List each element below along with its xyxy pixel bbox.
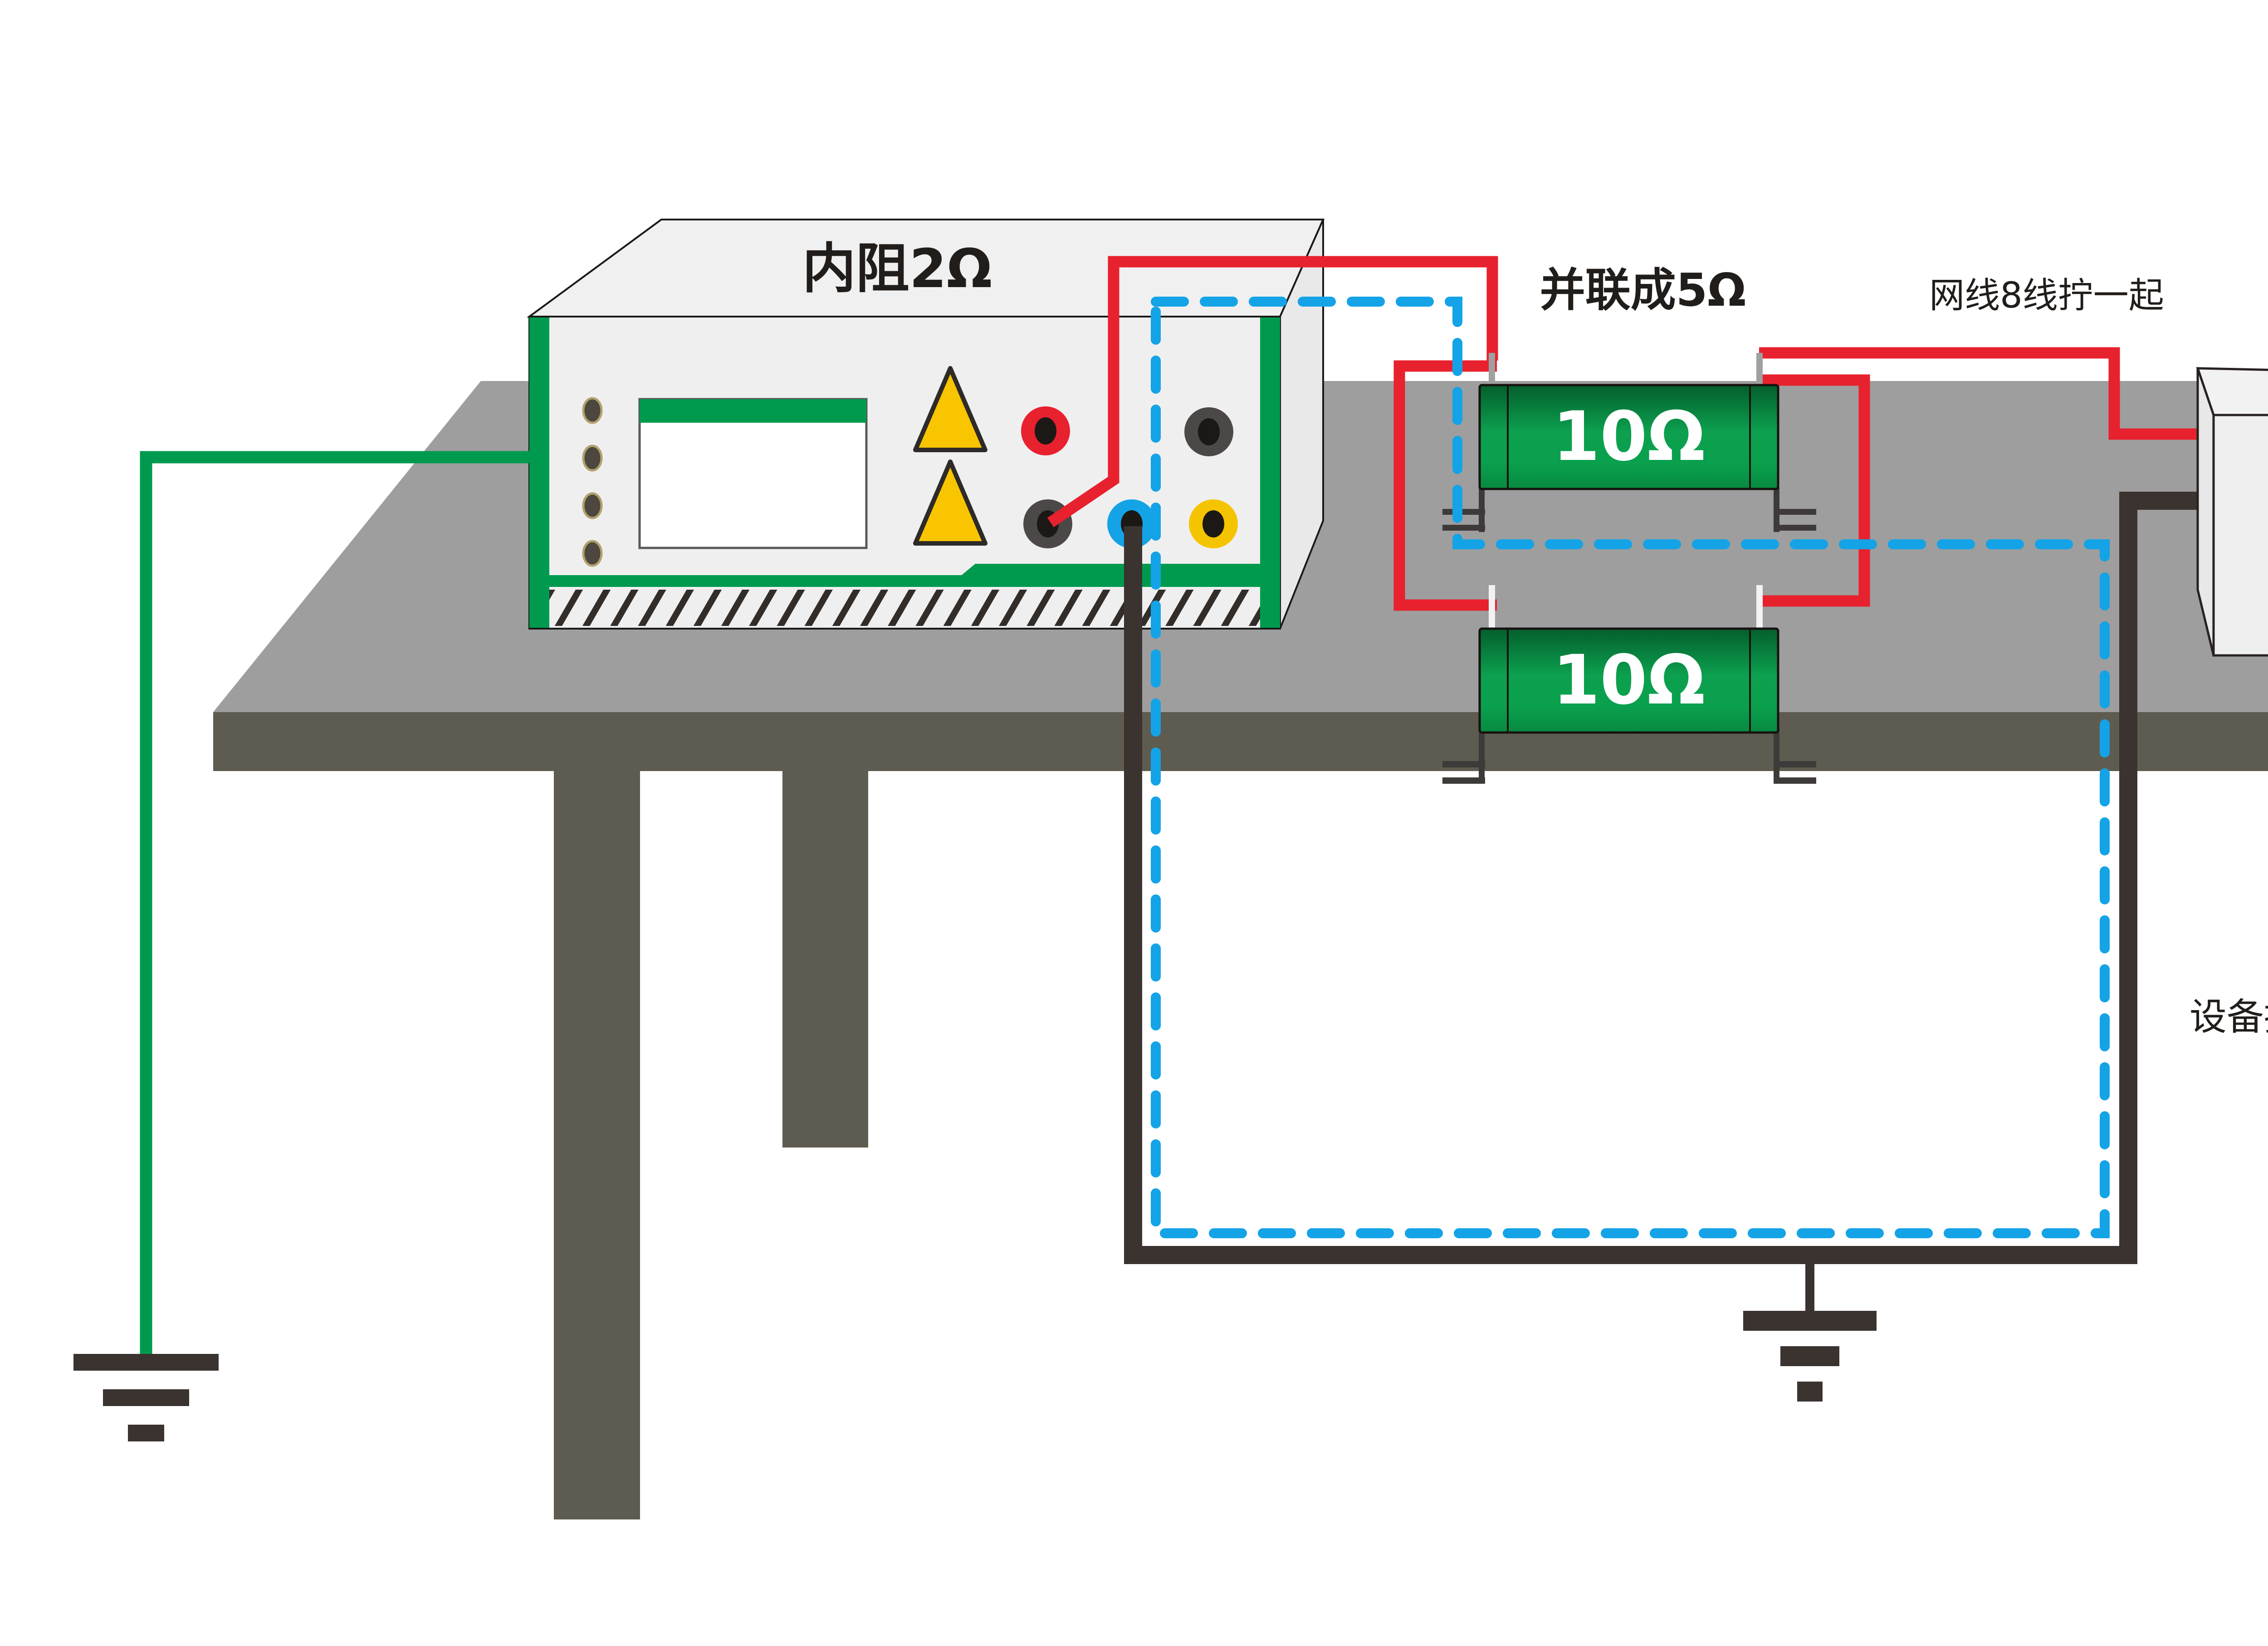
instrument-impedance-label: 内阻2Ω — [802, 242, 992, 295]
resistor-2-value: 10Ω — [1553, 646, 1705, 714]
table-leg-back-left — [782, 771, 868, 1148]
instrument-green-stripe-step — [962, 564, 1260, 575]
red-terminal[interactable] — [1021, 406, 1070, 455]
device-ground-label: 设备接地端 — [2190, 999, 2268, 1036]
gray-terminal-top[interactable] — [1184, 407, 1233, 456]
instrument-green-edge-right — [1260, 317, 1280, 628]
network-cable-label: 网线8线拧一起 — [1929, 278, 2164, 313]
yellow-terminal[interactable] — [1189, 499, 1238, 548]
parallel-resistance-label: 并联成5Ω — [1540, 268, 1746, 313]
table-leg-front-left — [554, 771, 640, 1519]
instrument-green-edge-left — [529, 317, 549, 628]
instrument-screen-header — [640, 399, 866, 423]
ground-symbol-middle-icon — [1743, 1255, 1877, 1402]
resistor-1-value: 10Ω — [1553, 403, 1705, 471]
diagram-graphics — [0, 0, 2268, 1646]
ground-symbol-left-icon — [73, 1354, 219, 1441]
table-skirt — [213, 712, 2268, 771]
eut-box — [2198, 368, 2268, 655]
diagram-canvas: 内阻2Ω 并联成5Ω 网线8线拧一起 10Ω 10Ω EUT RJ45 设备接地… — [0, 0, 2268, 1646]
